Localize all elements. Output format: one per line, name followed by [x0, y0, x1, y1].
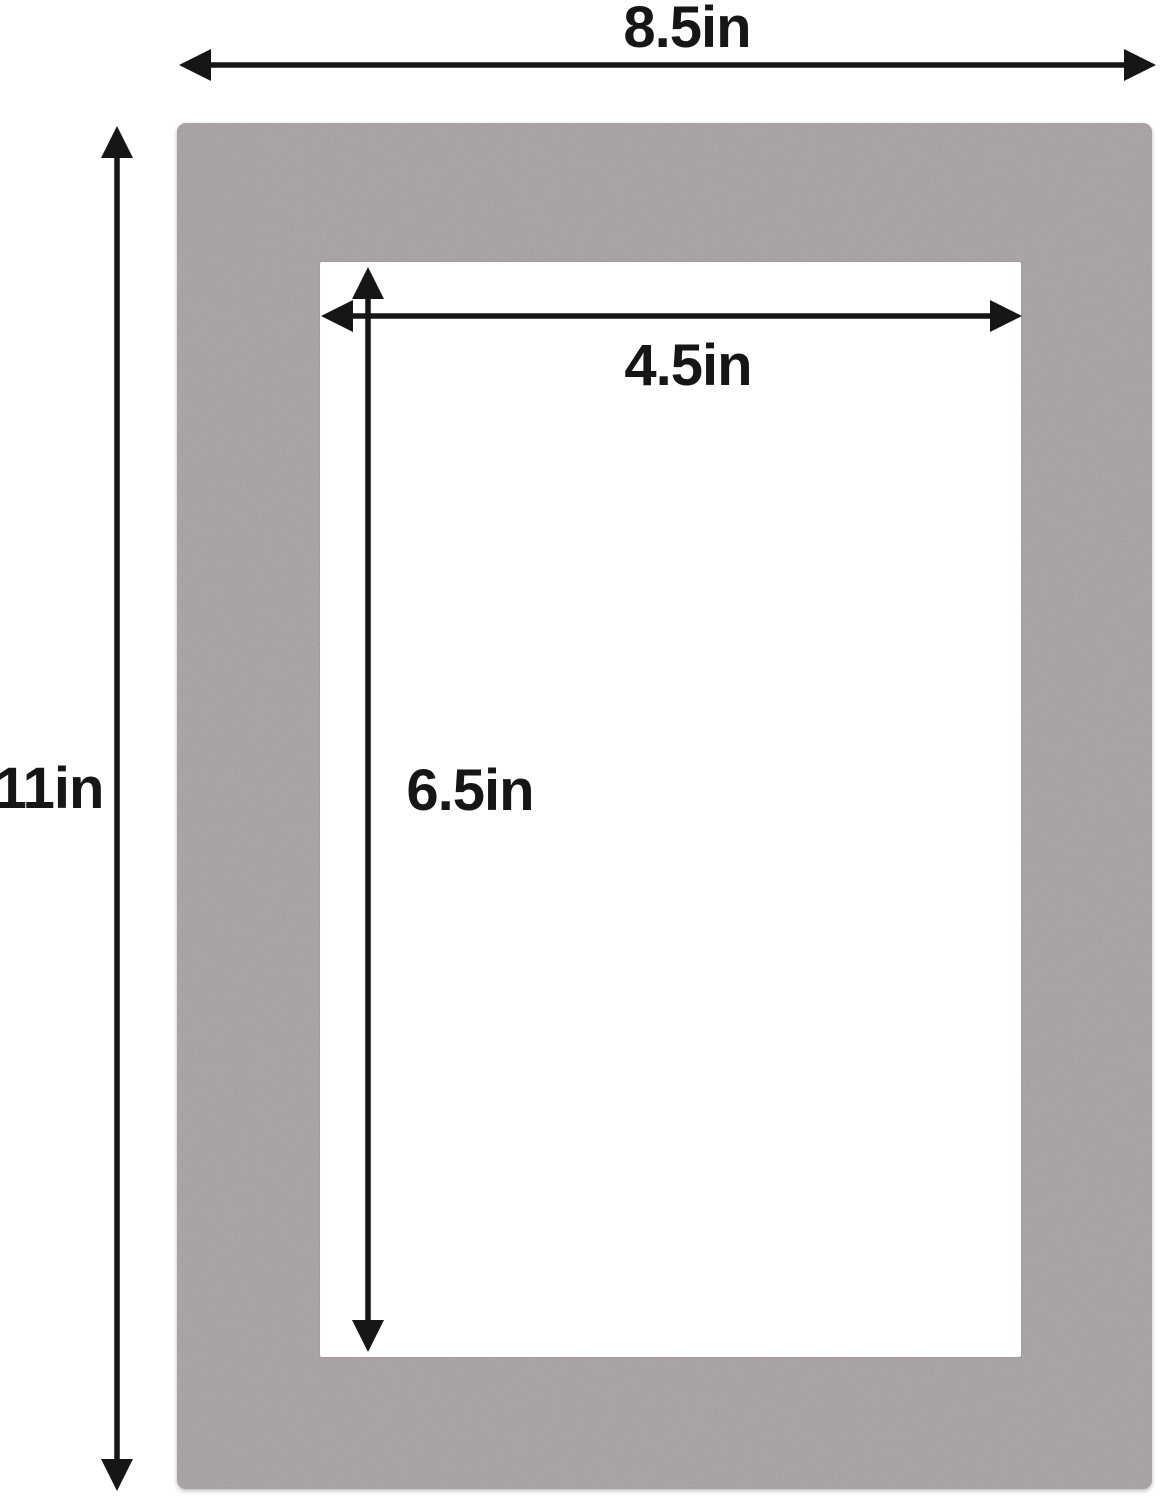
outer-height-label: 11in [0, 760, 103, 818]
opening-width-label: 4.5in [624, 337, 751, 395]
product-dimension-diagram: 8.5in 11in 4.5in 6.5in [0, 0, 1167, 1500]
mat-board [177, 123, 1152, 1489]
outer-width-label: 8.5in [623, 0, 750, 57]
opening-height-label: 6.5in [406, 762, 533, 820]
outer-height-arrow [101, 126, 133, 1491]
